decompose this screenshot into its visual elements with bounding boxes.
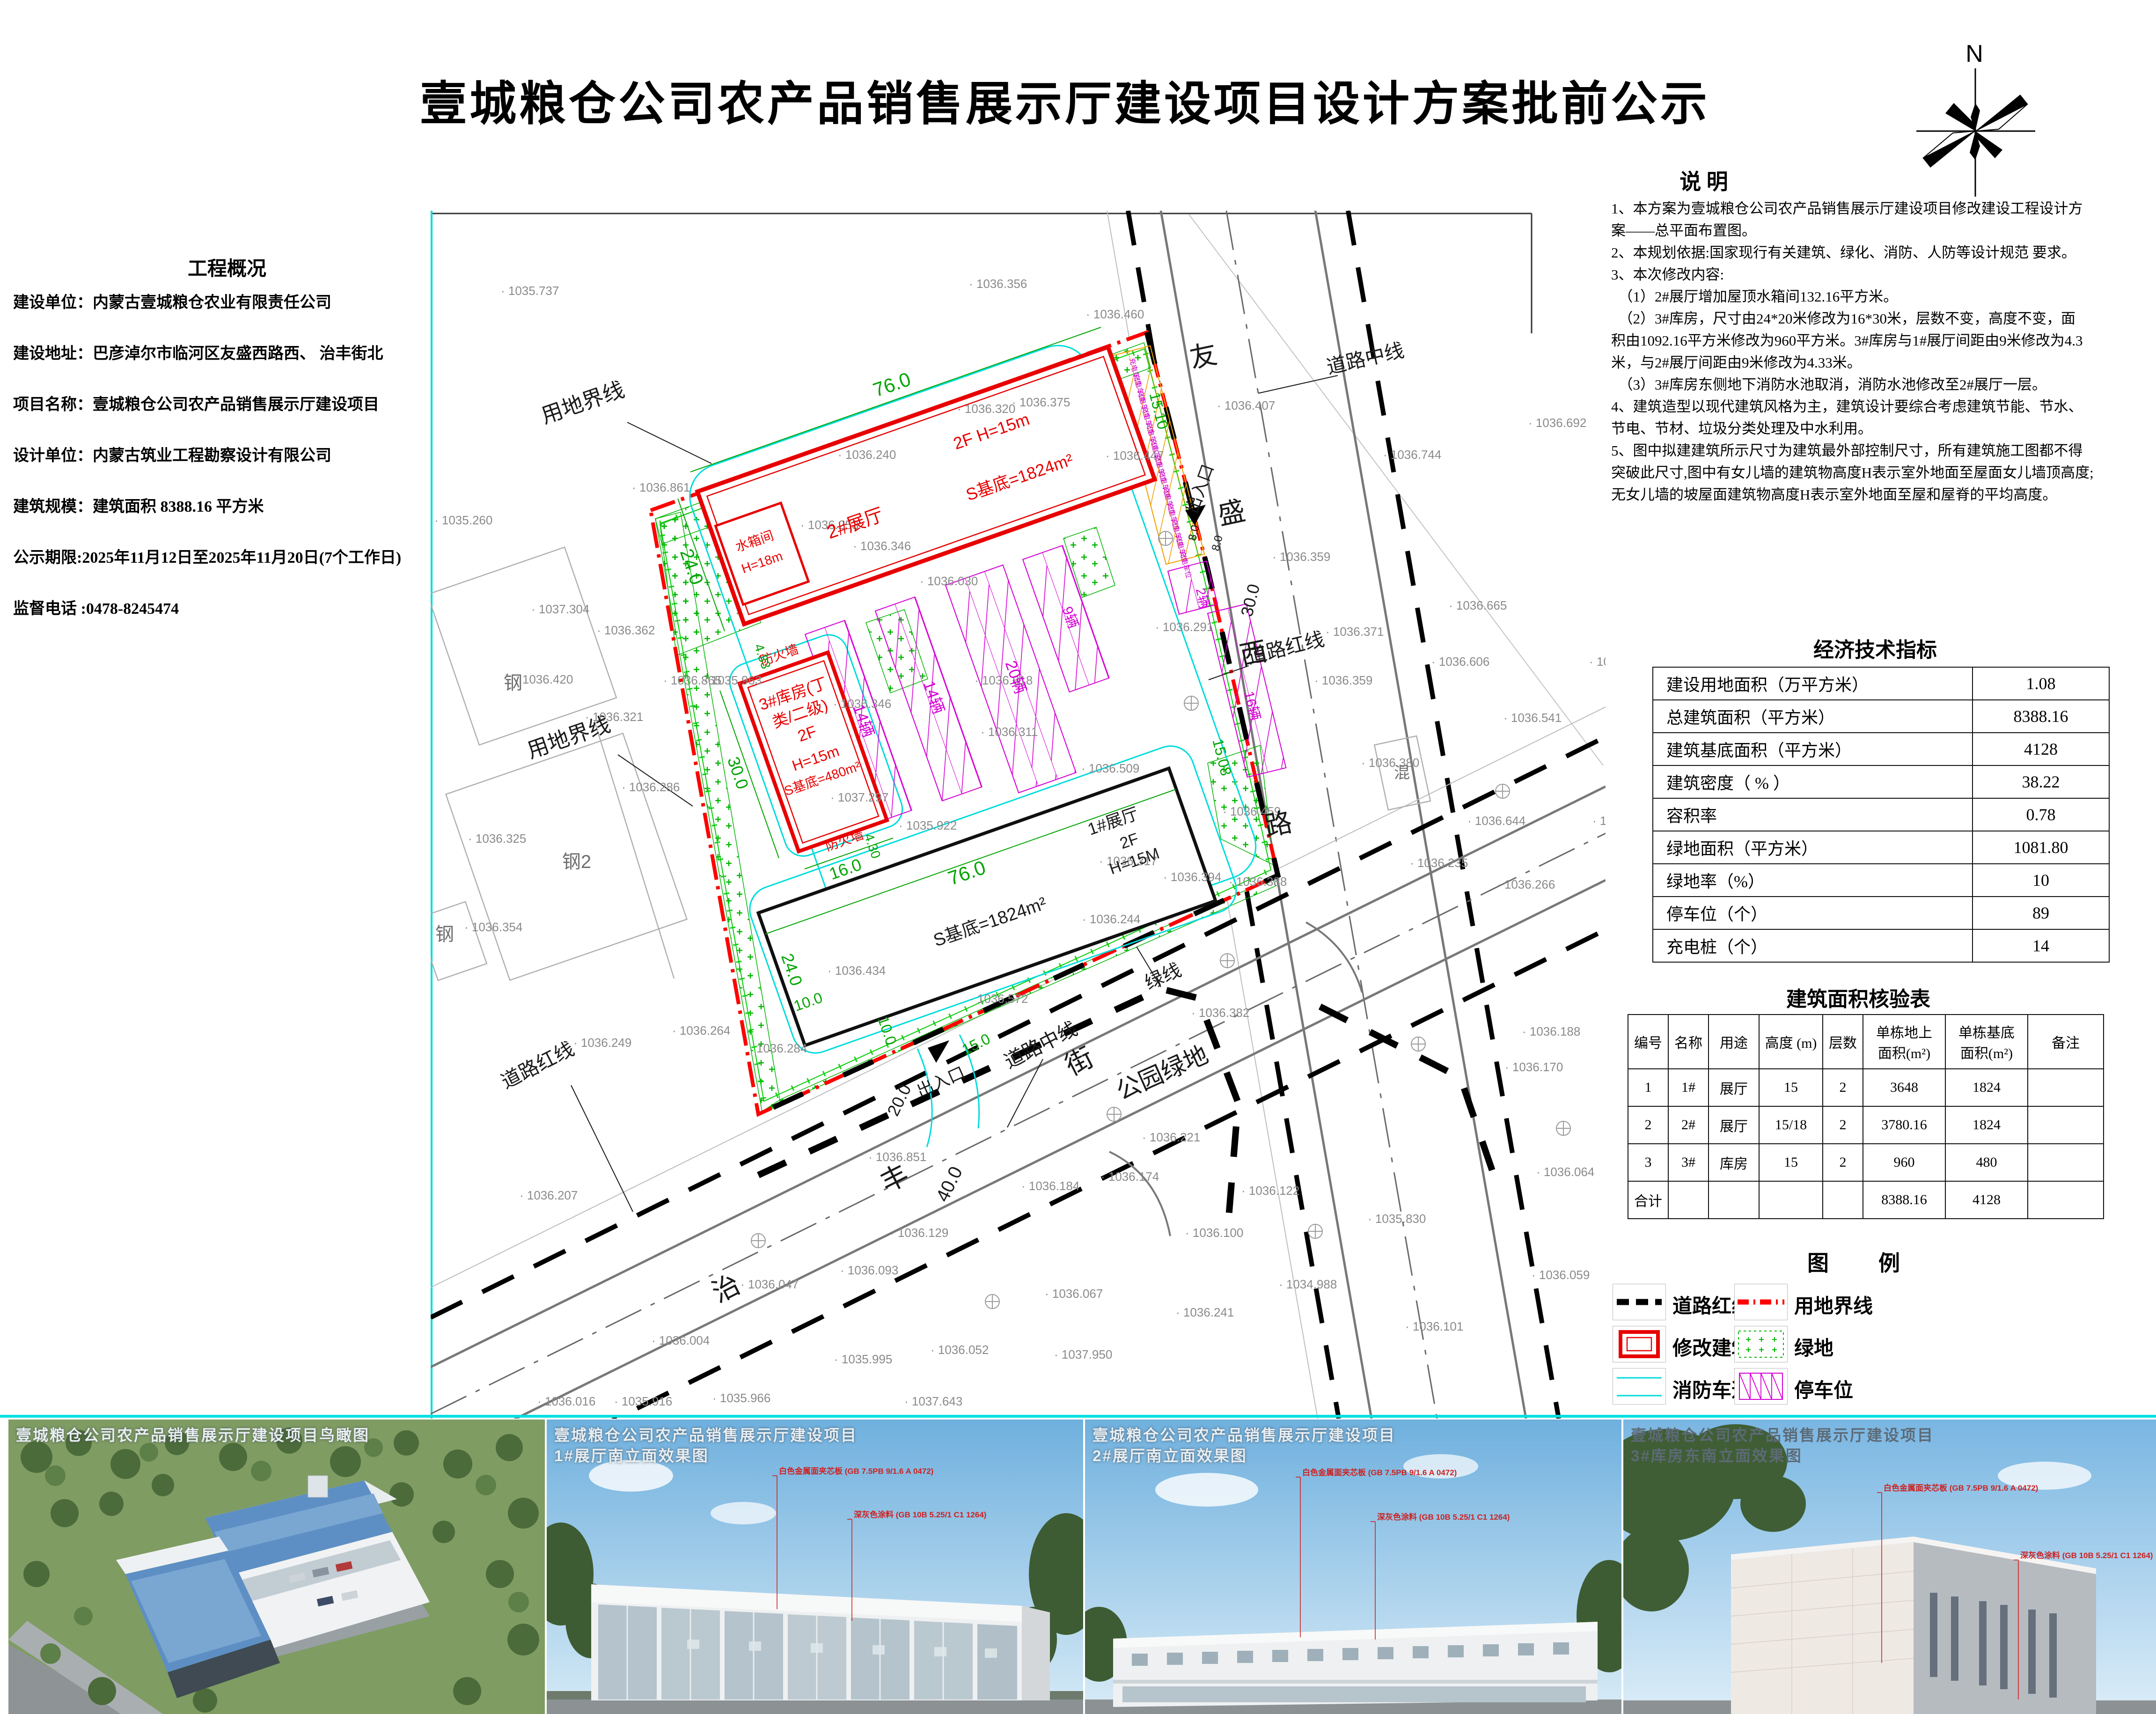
verification-cell: 2 [1823,1069,1863,1106]
plan-label: 街 [1061,1042,1099,1081]
plan-label: 道路红线 [498,1037,578,1093]
verification-cell [1668,1181,1709,1219]
elevation-point: · 1036.207 [520,1188,578,1202]
elevation-point: · 1036.434 [828,964,886,978]
plan-label: 丰 [876,1159,914,1198]
overview-item: 监督电话 :0478-8245474 [13,596,434,618]
verification-cell [1823,1181,1863,1219]
verification-row: 22#展厅15/1823780.161824 [1628,1106,2104,1144]
elevation-point: · 1036.291 [1155,620,1213,634]
verification-cell: 1824 [1945,1106,2028,1144]
elevation-point: · 1036.460 [1086,307,1144,321]
modified-building-icon [1613,1326,1666,1362]
indicator-value: 0.78 [1973,798,2109,831]
indicator-row: 绿地率（%）10 [1653,864,2109,897]
elevation-point: · 1036.359 [1314,673,1372,687]
render-caption-line: 3#库房东南立面效果图 [1631,1446,1934,1466]
site-plan: · 1035.737· 1036.356· 1036.460· 1036.861… [431,211,1606,1419]
note-line: 积由1092.16平方米修改为960平方米。3#库房与1#展厅间距由9米修改为4… [1611,330,2154,352]
elevation-point: · 1036.052 [931,1343,989,1357]
elevation-point: · 1036.325 [468,831,526,846]
legend-label: 绿地 [1794,1332,1833,1361]
elevation-point: · 1036.174 [1101,1170,1159,1184]
note-line: （2）3#库房，尺寸由24*20米修改为16*30米，层数不变，高度不变，面 [1611,308,2154,330]
elevation-point: · 1036.744 [1383,448,1441,462]
plan-label: 友 [1187,338,1220,374]
indicator-row: 建筑密度（ % ）38.22 [1653,765,2109,798]
indicator-label: 总建筑面积（平方米） [1653,700,1973,733]
elevation-point: · 1036.311 [981,725,1038,739]
elevation-point: · 1036.359 [1272,550,1330,564]
verification-heading: 建筑面积核验表 [1629,982,2088,1012]
overview-item: 公示期限:2025年11月12日至2025年11月20日(7个工作日) [13,544,434,567]
render-caption-line: 2#展厅南立面效果图 [1093,1446,1396,1466]
entrance-arrow-south [928,1040,949,1063]
indicator-label: 绿地面积（平方米） [1653,831,1973,864]
plan-label: 8.0 [1210,534,1225,552]
overview-item: 建设单位：内蒙古壹城粮仓农业有限责任公司 [13,289,434,312]
note-line: 案——总平面布置图。 [1611,220,2154,242]
verification-cell [1759,1181,1823,1219]
render-warehouse3-se: 白色金属面夹芯板 (GB 7.5PB 9/1.6 A 0472)深灰色涂料 (G… [1623,1420,2156,1714]
elevation-point: · 1036.170 [1505,1060,1563,1074]
elevation-point: · 1036.371 [1326,625,1384,639]
note-line: 1、本方案为壹城粮仓公司农产品销售展示厅建设项目修改建设工程设计方 [1611,198,2154,220]
elevation-point: · 1036.606 [1431,655,1489,669]
elevation-point: · 1036.122 [1241,1184,1299,1198]
elevation-point: · 1036.286 [622,780,680,794]
plan-label: 用地界线 [524,712,613,763]
plan-label: 混 [1394,764,1410,782]
plan-label: 钢 [504,673,522,693]
elevation-point: · 1035.260 [434,513,492,527]
indicators-table: 建设用地面积（万平方米）1.08总建筑面积（平方米）8388.16建筑基底面积（… [1652,667,2110,963]
verification-cell: 3780.16 [1863,1106,1945,1144]
indicator-value: 4128 [1973,733,2109,765]
plan-label: 西 [1237,636,1270,671]
note-line: （1）2#展厅增加屋顶水箱间132.16平方米。 [1611,286,2154,308]
elevation-point: · 1036.284 [749,1041,807,1055]
verification-header: 单栋地上 面积(m²) [1863,1015,1945,1069]
elevation-point: · 1036.067 [1045,1287,1103,1301]
verification-cell: 库房 [1709,1144,1759,1181]
plan-label: 公园绿地 [1112,1041,1212,1106]
indicator-label: 停车位（个） [1653,897,1973,929]
elevation-point: · 1037.297 [830,790,888,804]
render-hall2-south: 白色金属面夹芯板 (GB 7.5PB 9/1.6 A 0472)深灰色涂料 (G… [1085,1420,1621,1714]
plan-label: 出入口 [914,1063,968,1101]
north-label: N [1965,40,1983,67]
elevation-point: · 1035.830 [1368,1212,1426,1226]
verification-cell [2028,1181,2104,1219]
render-caption-line: 壹城粮仓公司农产品销售展示厅建设项目 [554,1425,858,1446]
indicator-row: 总建筑面积（平方米）8388.16 [1653,700,2109,733]
plan-label: 15.0 [959,1030,993,1058]
material-annotation: 白色金属面夹芯板 (GB 7.5PB 9/1.6 A 0472) [779,1466,933,1476]
material-annotation: 深灰色涂料 (GB 10B 5.25/1 C1 1264) [854,1510,986,1519]
render-aerial-view: 壹城粮仓公司农产品销售展示厅建设项目鸟瞰图 [8,1420,545,1714]
verification-cell [2028,1144,2104,1181]
verification-cell: 2 [1823,1106,1863,1144]
elevation-point: · 1036.266 [1497,877,1555,891]
plan-label: 盛 [1215,495,1248,531]
elevation-point: · 1036.221 [1142,1130,1200,1144]
note-line: 米，与2#展厅间距由9米修改为4.33米。 [1611,352,2154,374]
notes-lines: 1、本方案为壹城粮仓公司农产品销售展示厅建设项目修改建设工程设计方案——总平面布… [1611,198,2154,506]
indicator-value: 1081.80 [1973,831,2109,864]
legend-item-green-space: 绿地 [1734,1326,1936,1364]
render-caption-line: 1#展厅南立面效果图 [554,1446,858,1466]
elevation-point: · 1036.380 [1361,756,1419,770]
indicator-value: 10 [1973,864,2109,897]
aerial-view-image [8,1420,545,1714]
elevation-point: · 1036.101 [1405,1319,1463,1333]
elevation-point: · 1036.004 [652,1333,710,1347]
verification-cell [2028,1106,2104,1144]
verification-cell: 展厅 [1709,1106,1759,1144]
indicator-row: 停车位（个）89 [1653,897,2109,929]
elevation-point: · 1037.643 [904,1394,962,1408]
overview-item: 设计单位：内蒙古筑业工程勘察设计有限公司 [13,442,434,465]
overview-item: 建设地址：巴彦淖尔市临河区友盛西路西、 治丰街北 [13,340,434,363]
elevation-point: · 1036.129 [890,1226,948,1240]
elevation-point: · 1036.016 [537,1394,595,1408]
verification-row: 11#展厅15236481824 [1628,1069,2104,1106]
indicator-row: 充电桩（个）14 [1653,929,2109,962]
verification-cell: 3# [1668,1144,1709,1181]
verification-cell: 1 [1628,1069,1668,1106]
verification-cell: 3648 [1863,1069,1945,1106]
elevation-point: · 1036.509 [1081,761,1139,775]
verification-table: 编号名称用途高度 (m)层数单栋地上 面积(m²)单栋基底 面积(m²)备注11… [1628,1014,2104,1219]
elevation-point: · 1036.644 [1467,814,1525,828]
verification-header: 编号 [1628,1015,1668,1069]
legend-item-site-boundary: 用地界线 [1734,1284,1936,1322]
verification-header: 高度 (m) [1759,1015,1823,1069]
elevation-point: · 1036.541 [1503,711,1562,725]
elevation-point: · 1036.692 [1528,416,1586,430]
elevation-point: · 1036.572 [970,992,1028,1006]
verification-cell: 480 [1945,1144,2028,1181]
indicator-label: 建筑基底面积（平方米） [1653,733,1973,765]
verification-cell: 3 [1628,1144,1668,1181]
elevation-point: · 1036.100 [1185,1226,1243,1240]
elevation-point: · 1036.420 [515,672,573,686]
render-hall1-south: 白色金属面夹芯板 (GB 7.5PB 9/1.6 A 0472)深灰色涂料 (G… [547,1420,1083,1714]
verification-cell: 4128 [1945,1181,2028,1219]
verification-cell: 15 [1759,1144,1823,1181]
verification-header: 层数 [1823,1015,1863,1069]
material-annotation: 白色金属面夹芯板 (GB 7.5PB 9/1.6 A 0472) [1302,1468,1457,1477]
elevation-point: · 1036.064 [1536,1165,1594,1179]
indicator-row: 容积率0.78 [1653,798,2109,831]
plan-label: 钢2 [562,852,591,872]
indicator-value: 38.22 [1973,765,2109,798]
note-line: 4、建筑造型以现代建筑风格为主，建筑设计要综合考虑建筑节能、节水、 [1611,396,2154,418]
elevation-point: · 1036.375 [1012,395,1070,409]
elevation-point: · 1035.966 [712,1391,770,1405]
plan-label: 用地界线 [538,377,627,428]
note-line: 无女儿墙的坡屋面建筑物高度H表示室外地面至屋和屋脊的平均高度。 [1611,484,2154,506]
elevation-point: · 1036.244 [1082,912,1140,926]
verification-cell: 960 [1863,1144,1945,1181]
render-caption-line: 壹城粮仓公司农产品销售展示厅建设项目鸟瞰图 [16,1425,370,1446]
note-line: （3）3#库房东侧地下消防水池取消，消防水池修改至2#展厅一层。 [1611,374,2154,396]
indicator-row: 绿地面积（平方米）1081.80 [1653,831,2109,864]
elevation-point: · 1036.573 [1592,814,1606,828]
parking-space-icon [1734,1368,1788,1405]
plan-label: 钢 [435,924,454,945]
elevation-point: · 1036.240 [838,448,896,462]
elevation-point: · 1036.047 [741,1277,799,1291]
elevation-point: · 1035.995 [834,1352,892,1366]
render-caption-line: 壹城粮仓公司农产品销售展示厅建设项目 [1631,1425,1934,1446]
indicator-label: 绿地率（%） [1653,864,1973,897]
verification-cell: 1824 [1945,1069,2028,1106]
road-redline-icon [1613,1284,1666,1320]
elevation-point: · 1035.916 [614,1394,672,1408]
note-line: 突破此尺寸,图中有女儿墙的建筑物高度H表示室外地面至屋面女儿墙顶高度; [1611,462,2154,484]
material-annotation: 白色金属面夹芯板 (GB 7.5PB 9/1.6 A 0472) [1884,1483,2038,1493]
north-arrow: N [1910,37,2050,206]
plan-label: 20.0 [883,1081,915,1119]
elevation-point: · 1036.354 [464,920,522,934]
render-caption-4: 壹城粮仓公司农产品销售展示厅建设项目3#库房东南立面效果图 [1631,1425,1934,1466]
render-caption-1: 壹城粮仓公司农产品销售展示厅建设项目鸟瞰图 [16,1425,370,1446]
site-boundary-icon [1734,1284,1788,1320]
plan-label: 道路中线 [1325,339,1406,378]
verification-cell: 8388.16 [1863,1181,1945,1219]
verification-cell [2028,1069,2104,1106]
elevation-point: · 1036.665 [1449,598,1507,612]
divider-line [0,1415,2156,1418]
elevation-point: · 1036.241 [1176,1305,1234,1319]
elevation-point: · 1036.861 [632,480,690,494]
verification-header: 用途 [1709,1015,1759,1069]
legend-label: 停车位 [1794,1375,1853,1403]
verification-header: 单栋基底 面积(m²) [1945,1015,2028,1069]
elevation-point: · 1036.394 [1163,870,1221,884]
verification-cell: 15 [1759,1069,1823,1106]
verification-row: 33#库房152960480 [1628,1144,2104,1181]
elevation-point: · 1036.235 [1410,856,1468,870]
indicator-label: 充电桩（个） [1653,929,1973,962]
elevation-point: · 1036.356 [969,277,1027,291]
overview-item: 项目名称：壹城粮仓公司农产品销售展示厅建设项目 [13,391,434,414]
indicator-label: 容积率 [1653,798,1973,831]
indicator-value: 89 [1973,897,2109,929]
elevation-point: · 1036.382 [1191,1006,1249,1020]
render-caption-line: 壹城粮仓公司农产品销售展示厅建设项目 [1093,1425,1396,1446]
elevation-point: · 1036.346 [853,539,911,553]
verification-row: 合计8388.164128 [1628,1181,2104,1219]
green-space-icon [1734,1326,1788,1362]
verification-cell: 展厅 [1709,1069,1759,1106]
indicator-row: 建设用地面积（万平方米）1.08 [1653,667,2109,700]
elevation-point: · 1036.388 [1229,875,1287,889]
overview-items: 建设单位：内蒙古壹城粮仓农业有限责任公司建设地址：巴彦淖尔市临河区友盛西路西、 … [13,289,434,647]
indicators-heading: 经济技术指标 [1652,633,2098,663]
note-line: 节电、节材、垃圾分类处理及中水利用。 [1611,418,2154,440]
fire-lane-icon [1613,1368,1666,1405]
note-line: 2、本规划依据:国家现行有关建筑、绿化、消防、人防等设计规范 要求。 [1611,242,2154,264]
elevation-point: · 1036.407 [1217,398,1275,412]
render-caption-3: 壹城粮仓公司农产品销售展示厅建设项目2#展厅南立面效果图 [1093,1425,1396,1466]
indicator-label: 建筑密度（ % ） [1653,765,1973,798]
overview-heading: 工程概况 [0,253,454,281]
overview-item: 建筑规模：建筑面积 8388.16 平方米 [13,493,434,516]
legend-item-parking-space: 停车位 [1734,1368,1936,1406]
elevation-point: · 1037.950 [1054,1347,1112,1361]
elevation-point: · 1036.249 [573,1036,631,1050]
legend-heading: 图 例 [1627,1246,2095,1277]
verification-header: 名称 [1668,1015,1709,1069]
note-line: 3、本次修改内容: [1611,264,2154,286]
verification-cell: 2 [1823,1144,1863,1181]
verification-cell: 1# [1668,1069,1709,1106]
plan-label: 路 [1262,807,1295,842]
elevation-point: · 1035.922 [899,818,957,832]
material-annotation: 深灰色涂料 (GB 10B 5.25/1 C1 1264) [2020,1551,2153,1560]
elevation-point: · 1036.059 [1532,1268,1590,1282]
plan-label: 30.0 [1237,582,1264,618]
elevation-point: · 1036.188 [1522,1024,1580,1038]
indicator-label: 建设用地面积（万平方米） [1653,667,1973,700]
verification-cell: 2 [1628,1106,1668,1144]
verification-cell: 15/18 [1759,1106,1823,1144]
elevation-point: · 1034.988 [1279,1277,1337,1291]
render-caption-2: 壹城粮仓公司农产品销售展示厅建设项目1#展厅南立面效果图 [554,1425,858,1466]
page-title: 壹城粮仓公司农产品销售展示厅建设项目设计方案批前公示 [412,66,1718,133]
elevation-point: · 1036.579 [1589,655,1606,669]
elevation-point: · 1035.737 [501,284,559,298]
elevation-point: · 1035.963 [704,673,762,687]
legend-label: 用地界线 [1794,1290,1873,1319]
elevation-point: · 1036.264 [672,1023,730,1037]
indicator-value: 8388.16 [1973,700,2109,733]
elevation-point: · 1036.093 [840,1263,898,1277]
plan-label: 绿线 [1142,960,1184,994]
verification-cell [1709,1181,1759,1219]
verification-cell: 2# [1668,1106,1709,1144]
verification-header: 备注 [2028,1015,2104,1069]
notes-heading: 说 明 [1610,165,1797,196]
verification-cell: 合计 [1628,1181,1668,1219]
indicator-value: 1.08 [1973,667,2109,700]
material-annotation: 深灰色涂料 (GB 10B 5.25/1 C1 1264) [1377,1512,1510,1522]
elevation-point: · 1036.362 [597,623,655,637]
elevation-point: · 1037.304 [531,602,589,616]
elevation-point: · 1036.184 [1021,1179,1079,1193]
elevation-point: · 1036.030 [920,574,978,588]
note-line: 5、图中拟建建筑所示尺寸为建筑最外部控制尺寸，所有建筑施工图都不得 [1611,440,2154,462]
elevation-point: · 1036.320 [957,402,1015,416]
indicator-value: 14 [1973,929,2109,962]
road-redline-dash [1348,211,1559,1419]
indicator-row: 建筑基底面积（平方米）4128 [1653,733,2109,765]
